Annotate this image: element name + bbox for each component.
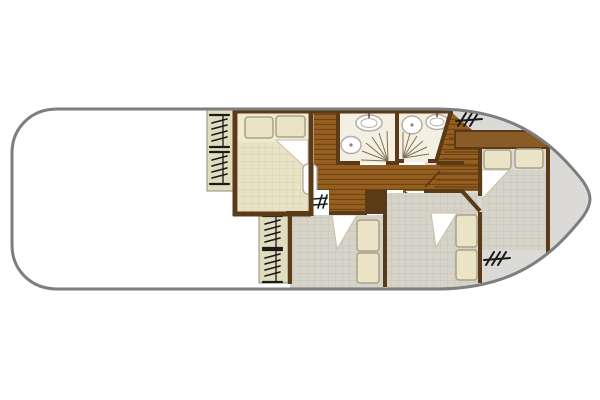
starboard-fwd-cabin bbox=[387, 193, 478, 288]
port-side-shelf bbox=[207, 110, 234, 191]
pillow bbox=[357, 253, 379, 283]
wall-block bbox=[365, 190, 385, 214]
shelf-surface bbox=[207, 110, 234, 191]
pillow bbox=[456, 250, 477, 280]
pillow bbox=[456, 215, 477, 247]
pillow bbox=[245, 117, 273, 138]
starboard-mid-cabin bbox=[290, 215, 385, 288]
bathroom-port bbox=[340, 112, 396, 163]
pillow bbox=[357, 220, 379, 251]
port-mid-cabin bbox=[238, 113, 308, 213]
pillow bbox=[515, 149, 543, 168]
screenshot-root bbox=[0, 0, 600, 400]
floor-plan-canvas bbox=[0, 0, 600, 400]
pillow bbox=[484, 150, 511, 169]
starboard-side-shelf bbox=[259, 213, 288, 283]
pillow bbox=[276, 116, 305, 137]
